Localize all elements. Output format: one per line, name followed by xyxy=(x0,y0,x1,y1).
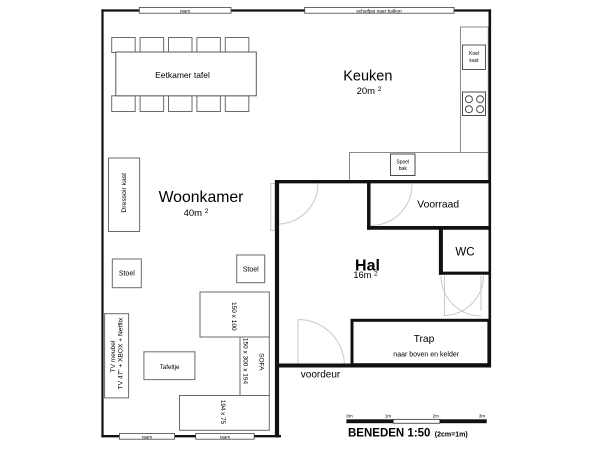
svg-text:1m: 1m xyxy=(385,414,392,419)
svg-text:150 x 300 x 194: 150 x 300 x 194 xyxy=(241,338,248,385)
svg-text:194 x 75: 194 x 75 xyxy=(219,400,226,425)
svg-text:Tafeltje: Tafeltje xyxy=(160,364,180,371)
svg-text:0m: 0m xyxy=(346,414,353,419)
svg-text:raam: raam xyxy=(220,434,231,439)
svg-text:Keuken: Keuken xyxy=(343,69,392,85)
svg-text:Voorraad: Voorraad xyxy=(417,200,459,211)
svg-text:raam: raam xyxy=(142,434,153,439)
svg-text:TV 47" + XBOX + Netflix: TV 47" + XBOX + Netflix xyxy=(118,317,125,389)
svg-text:Koel: Koel xyxy=(469,51,479,57)
svg-text:kast: kast xyxy=(469,58,479,64)
svg-text:Eetkamer tafel: Eetkamer tafel xyxy=(155,70,210,80)
svg-text:Trap: Trap xyxy=(414,334,435,345)
svg-text:3m: 3m xyxy=(479,414,486,419)
svg-text:WC: WC xyxy=(455,246,474,258)
svg-text:schuifpui naar balkon: schuifpui naar balkon xyxy=(356,8,402,14)
svg-text:2m: 2m xyxy=(433,414,440,419)
svg-text:Spoel: Spoel xyxy=(396,160,409,166)
svg-text:TV meubel: TV meubel xyxy=(110,340,117,372)
svg-text:Woonkamer: Woonkamer xyxy=(159,189,244,206)
svg-text:Stoel: Stoel xyxy=(243,266,259,273)
svg-text:bak: bak xyxy=(399,166,408,172)
svg-text:voordeur: voordeur xyxy=(301,369,341,380)
svg-text:150 x 100: 150 x 100 xyxy=(230,302,237,331)
svg-text:Dressoir kast: Dressoir kast xyxy=(121,173,128,213)
svg-text:(2cm=1m): (2cm=1m) xyxy=(435,431,468,438)
svg-text:naar boven en kelder: naar boven en kelder xyxy=(393,352,459,359)
svg-text:SOFA: SOFA xyxy=(257,353,264,371)
svg-text:BENEDEN 1:50: BENEDEN 1:50 xyxy=(348,428,430,440)
svg-text:Stoel: Stoel xyxy=(119,271,135,278)
svg-text:raam: raam xyxy=(180,8,191,13)
